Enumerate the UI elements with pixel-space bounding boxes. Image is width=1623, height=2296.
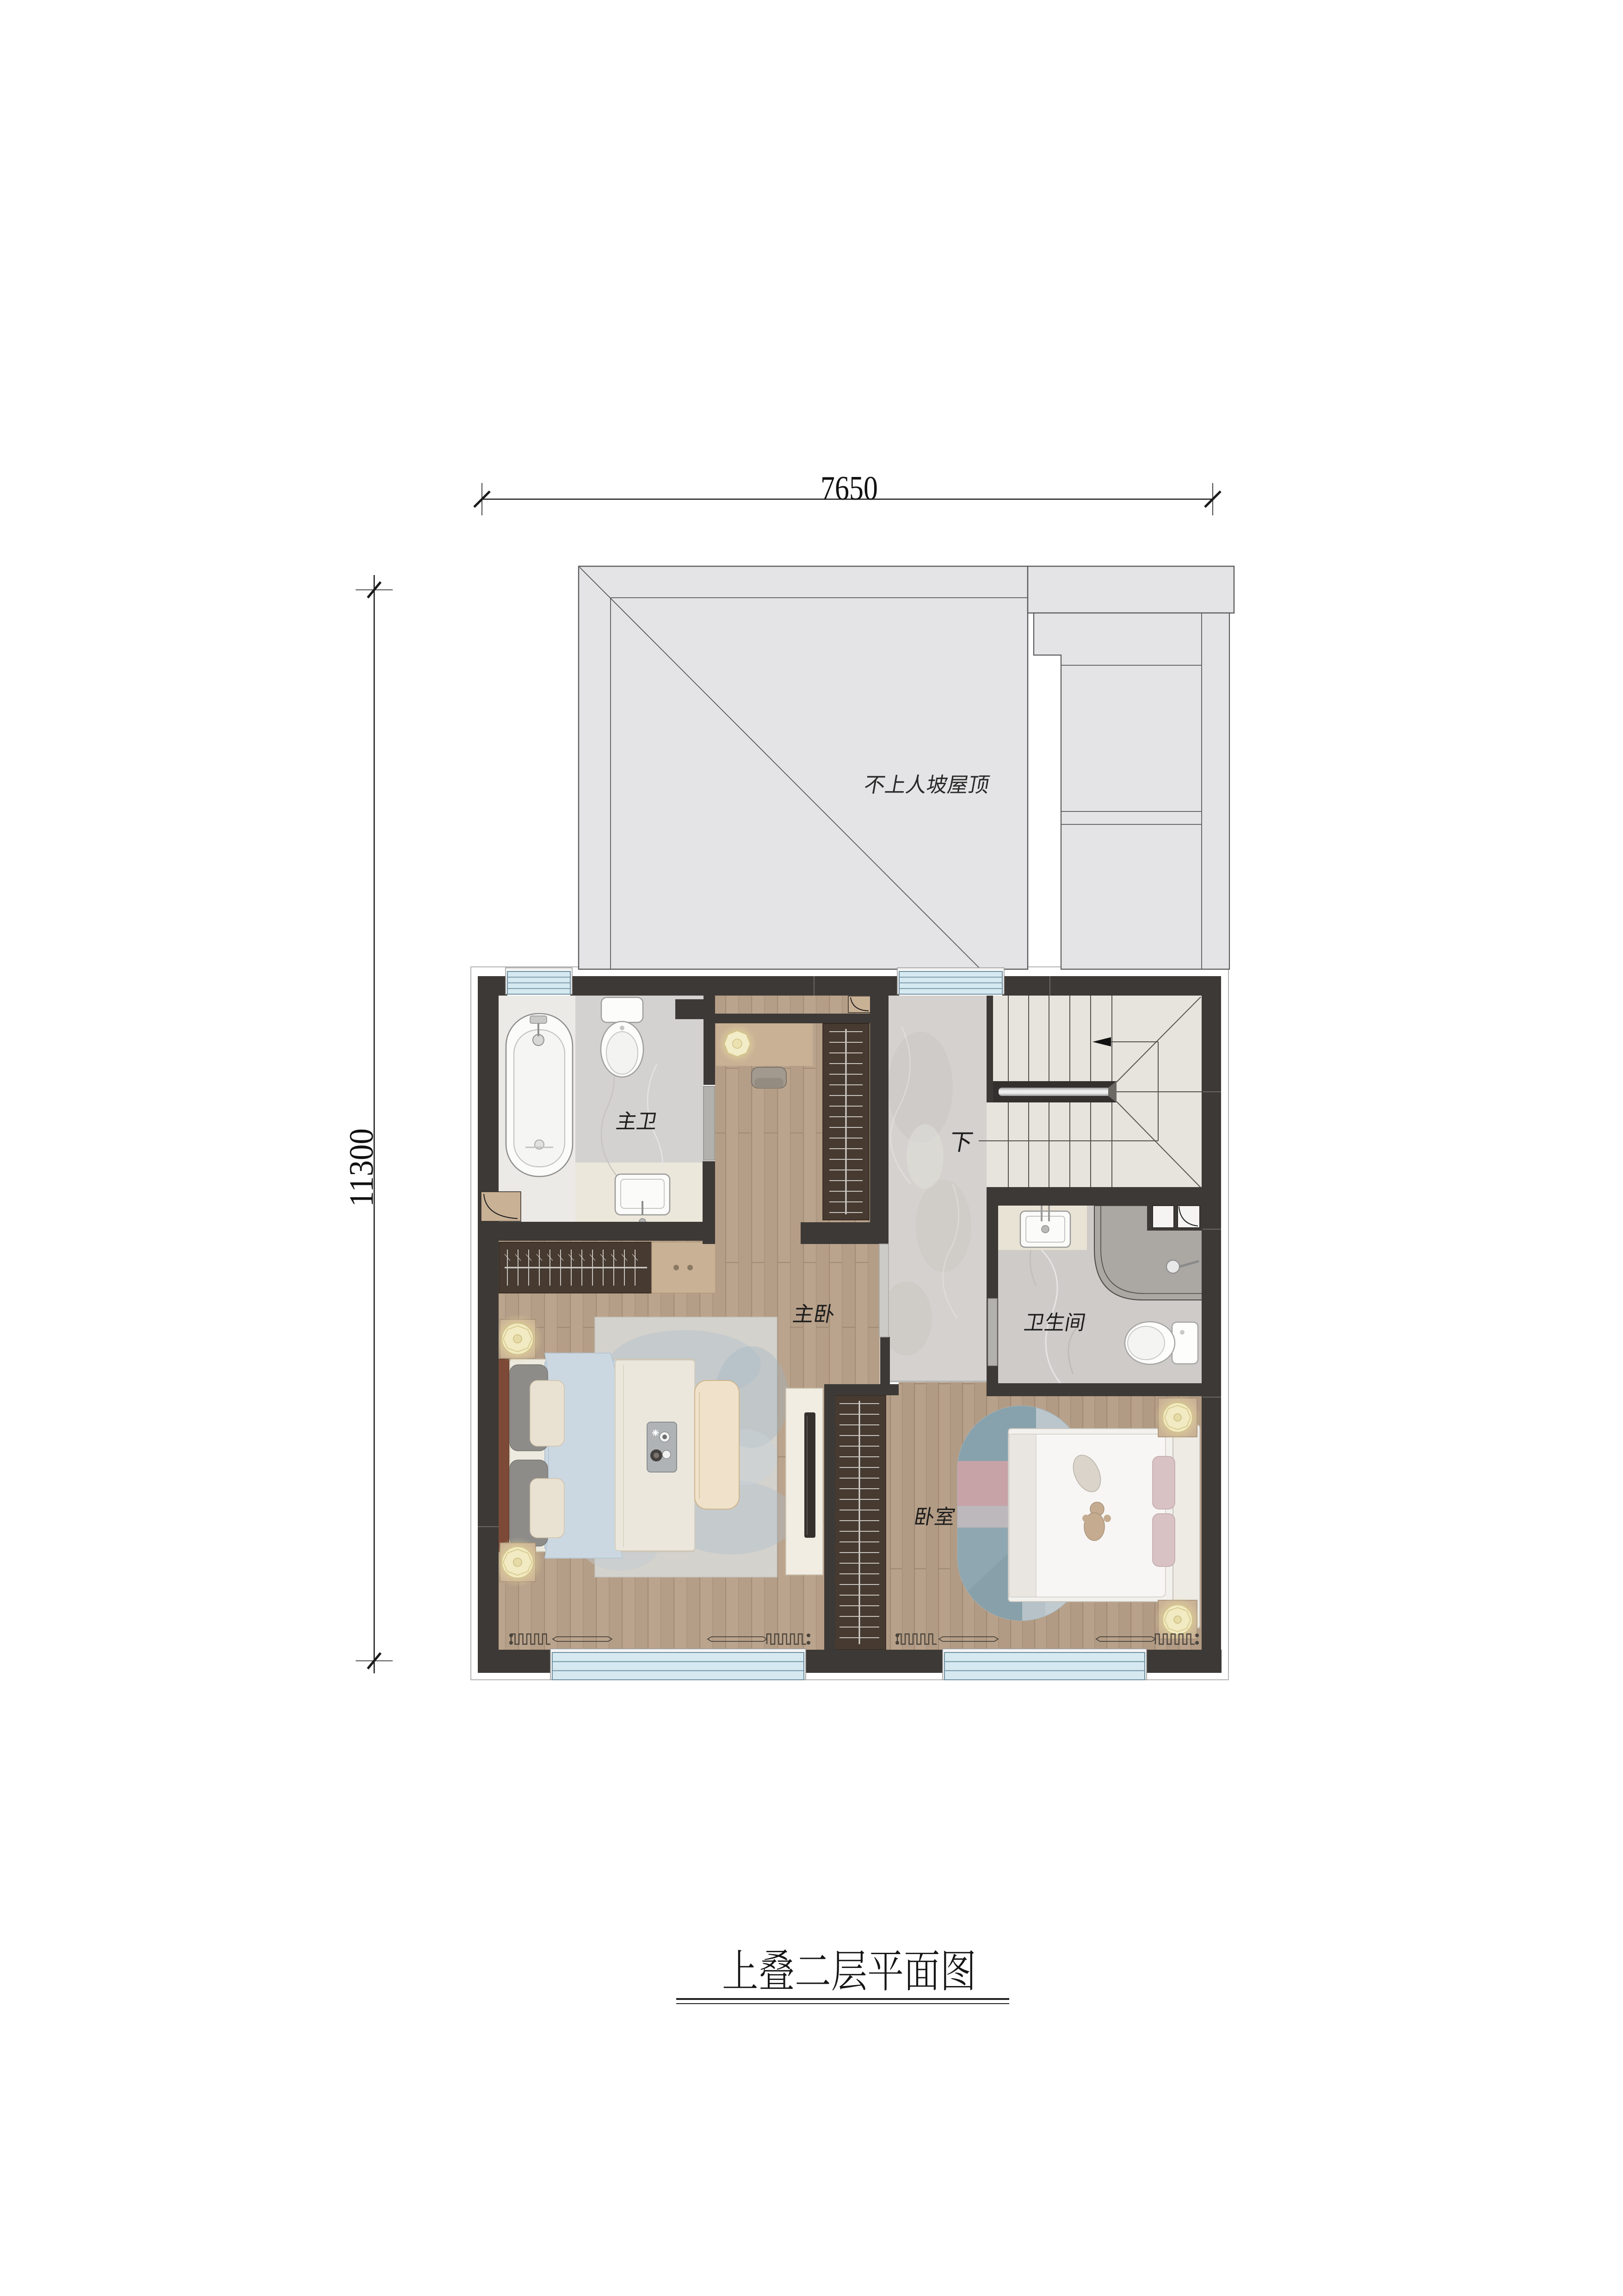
svg-text:11300: 11300: [343, 1128, 381, 1207]
svg-text:7650: 7650: [821, 470, 878, 507]
